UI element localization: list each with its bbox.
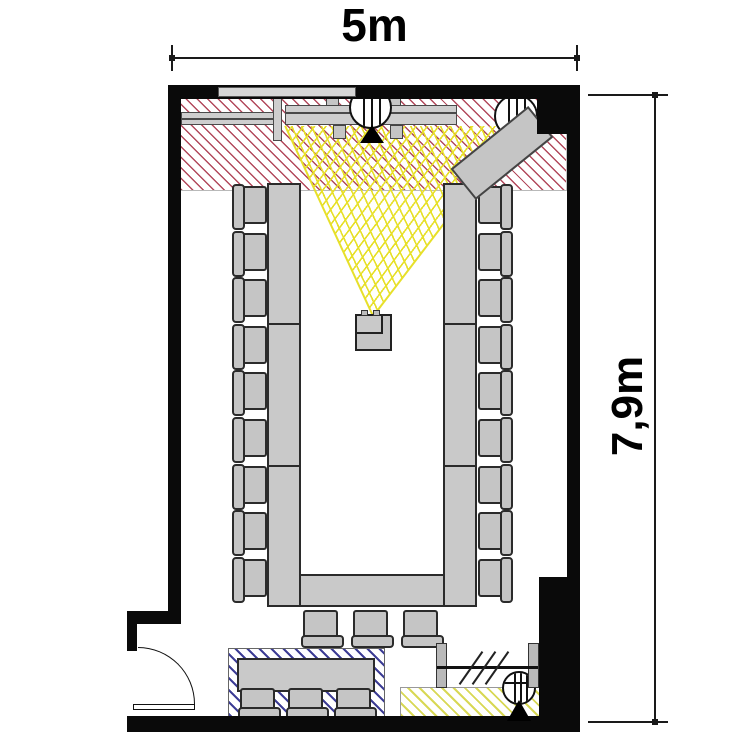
dimension-line-right bbox=[654, 95, 656, 722]
chair-left-row-4 bbox=[236, 326, 267, 364]
chair-right-row-4 bbox=[478, 326, 509, 364]
chair-right-row-9 bbox=[478, 559, 509, 597]
chair-left-row-2 bbox=[236, 233, 267, 271]
wall-block-top-right bbox=[537, 85, 580, 134]
chair-left-row-6 bbox=[236, 419, 267, 457]
chair-bottom-row-1 bbox=[303, 610, 338, 644]
chair-left-row-9 bbox=[236, 559, 267, 597]
dimension-line-top bbox=[172, 57, 577, 59]
door-leaf bbox=[133, 704, 195, 710]
u-table-left bbox=[267, 183, 301, 607]
buffet-table bbox=[237, 658, 375, 692]
floor-plan: 5m 7,9m bbox=[0, 0, 750, 750]
screen-bracket bbox=[333, 125, 346, 139]
table-seam bbox=[443, 323, 477, 325]
chair-left-row-3 bbox=[236, 279, 267, 317]
table-seam bbox=[267, 465, 301, 467]
speaker-position-marker-bottom-icon bbox=[507, 700, 531, 721]
chair-bottom-row-3 bbox=[403, 610, 438, 644]
projector-nub bbox=[373, 310, 380, 316]
chair-left-row-1 bbox=[236, 186, 267, 224]
room-height-label: 7,9m bbox=[605, 326, 651, 486]
chair-left-row-8 bbox=[236, 512, 267, 550]
projector-nub bbox=[361, 310, 368, 316]
screen-bracket bbox=[390, 125, 403, 139]
u-table-bottom bbox=[299, 574, 445, 607]
wall-left bbox=[168, 85, 181, 624]
whiteboard bbox=[181, 112, 278, 125]
u-table-right bbox=[443, 183, 477, 607]
chair-right-row-5 bbox=[478, 372, 509, 410]
dimension-dot bbox=[652, 92, 658, 98]
chair-bottom-row-2 bbox=[353, 610, 388, 644]
wall-rail bbox=[218, 87, 356, 97]
wall-block-bottom-right bbox=[539, 577, 580, 732]
chair-right-row-3 bbox=[478, 279, 509, 317]
chair-right-row-7 bbox=[478, 466, 509, 504]
dimension-dot bbox=[169, 55, 175, 61]
table-seam bbox=[443, 465, 477, 467]
chair-buffet-row-1 bbox=[240, 688, 275, 716]
chair-right-row-2 bbox=[478, 233, 509, 271]
chair-right-row-6 bbox=[478, 419, 509, 457]
chair-right-row-8 bbox=[478, 512, 509, 550]
chair-buffet-row-2 bbox=[288, 688, 323, 716]
wall-left-stub bbox=[127, 611, 137, 651]
dimension-dot bbox=[652, 719, 658, 725]
room-width-label: 5m bbox=[272, 0, 477, 50]
chair-left-row-5 bbox=[236, 372, 267, 410]
table-seam bbox=[267, 323, 301, 325]
chair-buffet-row-3 bbox=[336, 688, 371, 716]
projector bbox=[355, 314, 392, 351]
chair-left-row-7 bbox=[236, 466, 267, 504]
whiteboard-post bbox=[273, 97, 282, 141]
partition-rail bbox=[437, 666, 538, 669]
dimension-dot bbox=[574, 55, 580, 61]
speaker-position-marker-top-icon bbox=[360, 125, 384, 143]
door-swing-arc bbox=[138, 647, 195, 704]
